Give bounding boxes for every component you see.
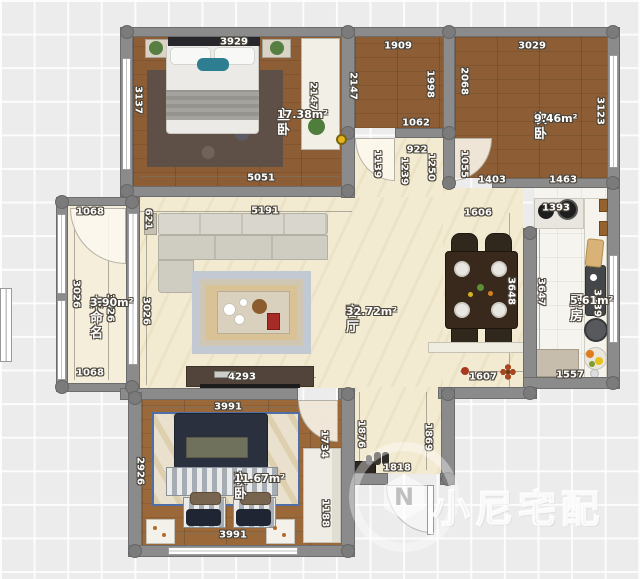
window — [0, 288, 12, 362]
wall — [443, 27, 455, 188]
dimension-label: 3991 — [214, 402, 242, 413]
dimension-label: 3026 — [141, 297, 152, 325]
master-blanket — [166, 90, 259, 120]
room-area: 11.67m² — [234, 473, 285, 486]
bedroom-bottom-closet[interactable] — [303, 448, 341, 543]
dimension-label: 1607 — [469, 372, 497, 383]
window — [128, 213, 138, 365]
dimension-label: 3991 — [219, 530, 247, 541]
wall-joint — [341, 387, 355, 401]
wall-joint — [125, 195, 139, 209]
navy-pillow — [186, 509, 221, 526]
wall — [120, 388, 298, 400]
window — [57, 300, 66, 380]
fruit-icon — [586, 350, 594, 358]
washing-machine[interactable] — [584, 318, 608, 342]
dimension-label: 1998 — [425, 70, 436, 98]
dimension-label: 1239 — [399, 157, 410, 185]
wall-joint — [606, 25, 620, 39]
plant-icon — [270, 41, 284, 55]
knob-icon — [162, 533, 166, 537]
room-area: 32.72m² — [346, 306, 397, 319]
wall-joint — [442, 176, 456, 190]
wall-joint — [341, 544, 355, 558]
wall — [120, 186, 353, 197]
master-accent-pillow — [197, 58, 229, 71]
dimension-label: 1557 — [556, 370, 584, 381]
plant-icon — [461, 367, 469, 375]
dimension-label: 1139 — [372, 150, 383, 178]
dim-line — [136, 211, 352, 212]
floor-plan-canvas: N 小尼宅配 392919093029313721472147199820683… — [0, 0, 640, 579]
dimension-label: 5191 — [251, 206, 279, 217]
dimension-label: 922 — [407, 145, 428, 156]
food-icon — [488, 291, 493, 296]
wall — [341, 388, 355, 557]
wall-joint — [523, 386, 537, 400]
wall-joint — [128, 391, 142, 405]
plate-icon — [239, 298, 248, 307]
watermark-logo-letter: N — [394, 483, 414, 511]
teddy-bear-icon — [252, 299, 267, 314]
navy-pillow — [236, 509, 271, 526]
wall-cabinet — [599, 199, 608, 212]
dimension-label: 3648 — [506, 277, 517, 305]
sofa-seat[interactable] — [158, 235, 328, 260]
watermark-text: 小尼宅配 — [432, 478, 604, 533]
wall-joint — [341, 25, 355, 39]
sofa-back[interactable] — [158, 213, 328, 235]
dimension-label: 2147 — [348, 72, 359, 100]
room-area: 17.38m² — [277, 109, 328, 122]
room-area: 3.90m² — [90, 297, 133, 310]
knob-icon — [282, 533, 286, 537]
wall — [341, 27, 355, 198]
dimension-label: 2068 — [459, 67, 470, 95]
dimension-label: 1250 — [426, 153, 437, 181]
wall-joint — [606, 376, 620, 390]
wall-joint — [442, 25, 456, 39]
dimension-label: 1463 — [549, 175, 577, 186]
dimension-label: 3026 — [71, 280, 82, 308]
door-marker-icon — [336, 134, 347, 145]
wall-joint — [128, 544, 142, 558]
wall-joint — [341, 184, 355, 198]
window — [609, 55, 618, 168]
fruit-icon — [589, 361, 595, 367]
dimension-label: 2926 — [135, 457, 146, 485]
dimension-label: 2147 — [308, 82, 319, 110]
food-icon — [477, 284, 484, 291]
dimension-label: 1062 — [402, 118, 430, 129]
olive-blanket — [186, 437, 248, 458]
nightstand[interactable] — [146, 519, 175, 544]
dimension-label: 1068 — [76, 368, 104, 379]
dimension-label: 1068 — [76, 207, 104, 218]
dimension-label: 1403 — [478, 175, 506, 186]
knob-icon — [273, 526, 277, 530]
plate-icon — [454, 302, 470, 318]
dimension-label: 1734 — [319, 430, 330, 458]
window — [168, 547, 298, 555]
food-icon — [468, 292, 473, 297]
red-box-icon — [267, 313, 280, 330]
plant-icon — [149, 41, 163, 55]
room-area: 5.61m² — [570, 295, 613, 308]
room-area: 9.46m² — [534, 113, 577, 126]
fruit-icon — [595, 357, 603, 365]
window — [122, 58, 131, 170]
dimension-label: 1876 — [356, 420, 367, 448]
dimension-label: 1188 — [320, 499, 331, 527]
plate-icon — [234, 314, 245, 325]
wall-joint — [120, 25, 134, 39]
sofa-chaise[interactable] — [158, 260, 194, 293]
plate-icon — [491, 261, 507, 277]
dimension-label: 5051 — [247, 173, 275, 184]
wall-cabinet — [599, 221, 608, 236]
knob-icon — [153, 526, 157, 530]
wall-joint — [523, 226, 537, 240]
dim-line — [140, 176, 340, 177]
wall-joint — [442, 126, 456, 140]
dimension-label: 1606 — [464, 208, 492, 219]
plate-icon — [223, 303, 236, 316]
wall-joint — [606, 176, 620, 190]
dimension-label: 1393 — [542, 203, 570, 214]
wall-joint — [55, 195, 69, 209]
window — [57, 214, 66, 294]
wall-joint — [441, 387, 455, 401]
dimension-label: 3929 — [220, 37, 248, 48]
dimension-label: 3647 — [536, 278, 547, 306]
dimension-label: 621 — [143, 209, 154, 230]
faucet-icon — [590, 274, 597, 281]
dimension-label: 4293 — [228, 372, 256, 383]
flower-icon — [500, 364, 516, 380]
dimension-label: 3029 — [518, 41, 546, 52]
dining-sideboard[interactable] — [428, 342, 525, 353]
dimension-label: 1909 — [384, 41, 412, 52]
dimension-label: 1055 — [459, 150, 470, 178]
dimension-label: 3137 — [133, 86, 144, 114]
wall-joint — [55, 380, 69, 394]
wall — [120, 27, 620, 37]
dimension-label: 3123 — [595, 97, 606, 125]
wall — [395, 128, 443, 138]
plate-icon — [454, 261, 470, 277]
cutting-board-icon — [585, 238, 605, 268]
floral-pillow — [190, 492, 221, 505]
